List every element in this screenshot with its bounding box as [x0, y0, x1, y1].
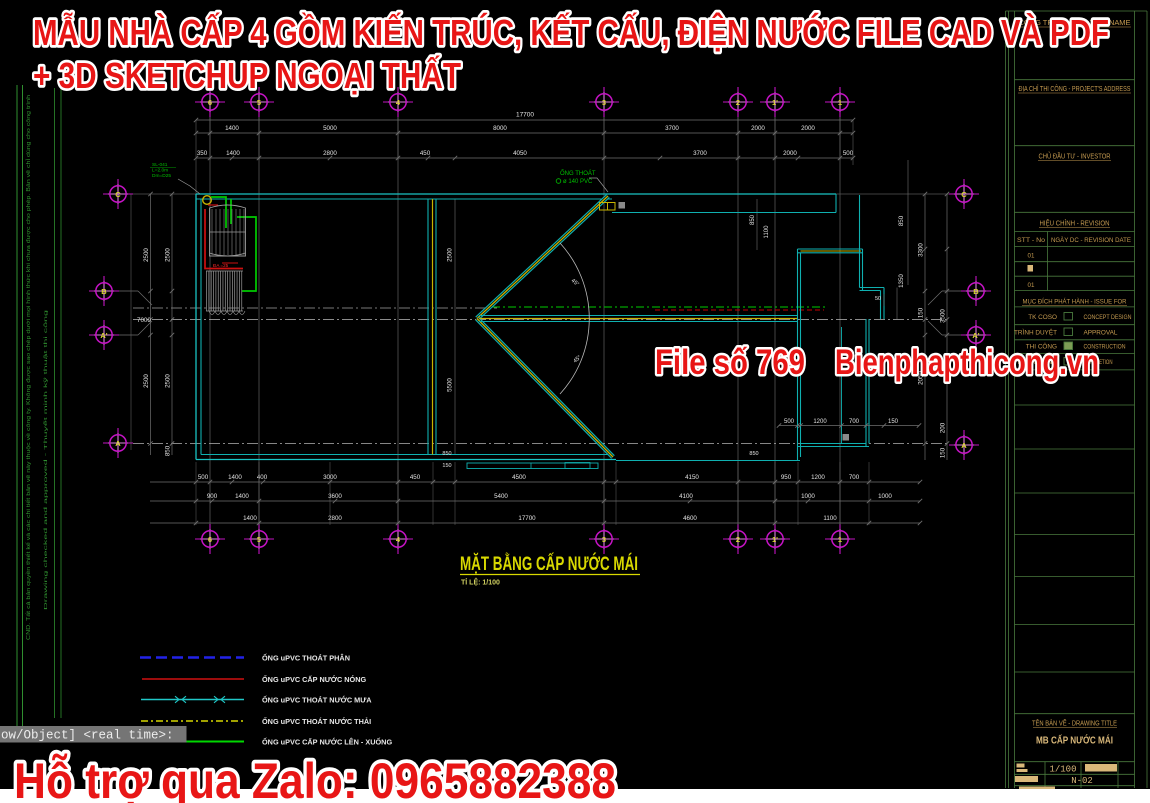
- svg-text:950: 950: [781, 474, 792, 481]
- svg-text:5000: 5000: [323, 125, 337, 132]
- svg-text:450: 450: [420, 150, 431, 157]
- svg-text:1/100: 1/100: [1049, 765, 1076, 775]
- svg-text:ỐNG uPVC CẤP NƯỚC LÊN - XUỐNG: ỐNG uPVC CẤP NƯỚC LÊN - XUỐNG: [262, 737, 392, 747]
- svg-text:4100: 4100: [679, 493, 693, 500]
- svg-text:CND. Tất cả bản quyền thiết kế: CND. Tất cả bản quyền thiết kế và các ch…: [25, 95, 32, 640]
- svg-text:1: 1: [838, 535, 842, 544]
- svg-text:1': 1': [772, 535, 778, 544]
- svg-text:900: 900: [207, 493, 218, 500]
- svg-text:5: 5: [257, 98, 261, 107]
- svg-text:SL-041: SL-041: [152, 162, 168, 168]
- svg-text:4050: 4050: [513, 150, 527, 157]
- svg-text:1200: 1200: [813, 419, 827, 425]
- svg-text:6: 6: [208, 98, 212, 107]
- svg-text:2: 2: [736, 535, 740, 544]
- svg-text:3600: 3600: [328, 493, 342, 500]
- svg-text:17700: 17700: [518, 515, 536, 522]
- svg-text:ĐỊA CHỈ THI CÔNG - PROJECT'S A: ĐỊA CHỈ THI CÔNG - PROJECT'S ADDRESS: [1019, 84, 1131, 93]
- svg-text:200: 200: [940, 422, 947, 433]
- svg-text:C: C: [961, 190, 967, 199]
- svg-text:ow/Object] <real time>:: ow/Object] <real time>:: [1, 729, 174, 743]
- svg-text:350: 350: [197, 150, 208, 157]
- svg-text:A: A: [115, 439, 121, 448]
- svg-text:MỤC ĐÍCH PHÁT HÀNH - ISSUE FOR: MỤC ĐÍCH PHÁT HÀNH - ISSUE FOR: [1023, 297, 1127, 306]
- svg-text:4150: 4150: [685, 474, 699, 481]
- svg-text:1: 1: [838, 98, 842, 107]
- svg-text:C: C: [115, 190, 121, 199]
- svg-text:1000: 1000: [801, 493, 815, 500]
- svg-text:01: 01: [1028, 253, 1035, 260]
- svg-text:850: 850: [165, 445, 172, 456]
- svg-text:1400: 1400: [243, 515, 257, 522]
- svg-text:1400: 1400: [235, 493, 249, 500]
- svg-text:ỐNG uPVC CẤP NƯỚC NÓNG: ỐNG uPVC CẤP NƯỚC NÓNG: [262, 674, 366, 684]
- svg-text:150: 150: [888, 419, 899, 425]
- svg-text:2500: 2500: [165, 374, 172, 388]
- svg-text:STT - No: STT - No: [1017, 237, 1046, 244]
- svg-text:2500: 2500: [447, 248, 454, 262]
- svg-text:TÊN BẢN VẼ - DRAWING TITLE: TÊN BẢN VẼ - DRAWING TITLE: [1032, 719, 1117, 728]
- svg-text:HIỆU CHỈNH - REVISION: HIỆU CHỈNH - REVISION: [1040, 219, 1110, 228]
- svg-text:ỐNG uPVC THOÁT NƯỚC THẢI: ỐNG uPVC THOÁT NƯỚC THẢI: [262, 716, 371, 726]
- svg-text:Hỗ trợ qua Zalo: 0965882388: Hỗ trợ qua Zalo: 0965882388: [14, 753, 616, 803]
- svg-text:2500: 2500: [143, 374, 150, 388]
- svg-text:N-02: N-02: [1071, 776, 1093, 786]
- svg-text:TK COSO: TK COSO: [1028, 314, 1057, 321]
- svg-text:+ 3D SKETCHUP NGOẠI THẤT: + 3D SKETCHUP NGOẠI THẤT: [33, 55, 461, 96]
- svg-text:700: 700: [849, 419, 860, 425]
- svg-text:2000: 2000: [801, 125, 815, 132]
- svg-text:150: 150: [442, 463, 451, 469]
- svg-text:450: 450: [410, 474, 421, 481]
- svg-text:File số 769: File số 769: [655, 343, 805, 382]
- svg-text:APPROVAL: APPROVAL: [1084, 330, 1118, 337]
- svg-text:ỐNG uPVC THOÁT NƯỚC MƯA: ỐNG uPVC THOÁT NƯỚC MƯA: [262, 695, 372, 705]
- svg-text:1000: 1000: [878, 493, 892, 500]
- svg-text:1350: 1350: [898, 274, 905, 288]
- svg-text:8000: 8000: [493, 125, 507, 132]
- svg-text:2500: 2500: [143, 248, 150, 262]
- svg-text:2000: 2000: [783, 150, 797, 157]
- svg-text:ỐNG THOÁT: ỐNG THOÁT: [560, 170, 596, 177]
- svg-text:850: 850: [442, 451, 451, 457]
- svg-text:850: 850: [898, 215, 905, 226]
- svg-text:MẪU NHÀ CẤP 4 GỒM KIẾN TRÚC, K: MẪU NHÀ CẤP 4 GỒM KIẾN TRÚC, KẾT CẤU, ĐI…: [33, 11, 1109, 53]
- svg-text:1400: 1400: [225, 125, 239, 132]
- svg-text:MB CẤP NƯỚC MÁI: MB CẤP NƯỚC MÁI: [1036, 734, 1113, 747]
- svg-text:4600: 4600: [683, 515, 697, 522]
- svg-text:MẶT BẰNG CẤP NƯỚC MÁI: MẶT BẰNG CẤP NƯỚC MÁI: [460, 553, 638, 575]
- svg-text:5: 5: [257, 535, 261, 544]
- svg-text:2000: 2000: [751, 125, 765, 132]
- svg-text:01: 01: [1028, 282, 1035, 289]
- svg-text:ĐA =25: ĐA =25: [213, 263, 229, 268]
- svg-text:1100: 1100: [823, 515, 837, 522]
- svg-text:3300: 3300: [918, 243, 925, 257]
- svg-text:500: 500: [198, 474, 209, 481]
- svg-text:5500: 5500: [447, 378, 454, 392]
- svg-text:700: 700: [849, 474, 860, 481]
- svg-text:6: 6: [208, 535, 212, 544]
- svg-text:B: B: [101, 287, 107, 296]
- svg-text:1100: 1100: [764, 225, 770, 239]
- svg-text:B: B: [973, 287, 979, 296]
- svg-text:3000: 3000: [323, 474, 337, 481]
- svg-text:L=2.0m: L=2.0m: [152, 168, 168, 174]
- svg-text:Bienphapthicong.vn: Bienphapthicong.vn: [835, 343, 1099, 382]
- svg-text:Drawing checked and approved -: Drawing checked and approved - Thuyết mi…: [43, 309, 48, 610]
- svg-text:50: 50: [875, 296, 881, 302]
- svg-text:3: 3: [602, 98, 606, 107]
- svg-text:3500: 3500: [940, 309, 947, 323]
- svg-text:150: 150: [918, 307, 925, 318]
- svg-text:400: 400: [257, 474, 268, 481]
- svg-text:850: 850: [750, 214, 756, 225]
- svg-text:2: 2: [736, 98, 740, 107]
- svg-text:1400: 1400: [226, 150, 240, 157]
- svg-text:17700: 17700: [516, 112, 534, 119]
- svg-text:3700: 3700: [665, 125, 679, 132]
- svg-text:850: 850: [749, 451, 758, 457]
- svg-text:A': A': [972, 331, 979, 340]
- svg-text:3700: 3700: [693, 150, 707, 157]
- svg-text:2500: 2500: [165, 248, 172, 262]
- svg-text:500: 500: [843, 150, 854, 157]
- svg-text:Dm=D25: Dm=D25: [152, 173, 171, 179]
- svg-text:ỐNG uPVC THOÁT PHÂN: ỐNG uPVC THOÁT PHÂN: [262, 653, 350, 663]
- svg-text:2800: 2800: [328, 515, 342, 522]
- svg-text:7000: 7000: [137, 317, 151, 324]
- svg-text:NGÀY DC - REVISION DATE: NGÀY DC - REVISION DATE: [1051, 237, 1131, 244]
- svg-text:1': 1': [772, 98, 778, 107]
- svg-text:4500: 4500: [512, 474, 526, 481]
- svg-text:CONCEPT DESIGN: CONCEPT DESIGN: [1084, 314, 1132, 321]
- svg-text:150: 150: [940, 447, 947, 458]
- svg-text:ø 140 PVC: ø 140 PVC: [563, 179, 593, 185]
- svg-text:A': A': [100, 331, 107, 340]
- svg-text:TRÌNH DUYỆT: TRÌNH DUYỆT: [1014, 328, 1057, 337]
- svg-text:500: 500: [784, 419, 795, 425]
- svg-text:A: A: [961, 441, 967, 450]
- svg-text:1200: 1200: [811, 474, 825, 481]
- svg-text:5400: 5400: [494, 493, 508, 500]
- svg-text:1400: 1400: [228, 474, 242, 481]
- svg-text:2800: 2800: [323, 150, 337, 157]
- svg-text:3: 3: [602, 535, 606, 544]
- svg-text:TỈ LỆ: 1/100: TỈ LỆ: 1/100: [461, 578, 500, 587]
